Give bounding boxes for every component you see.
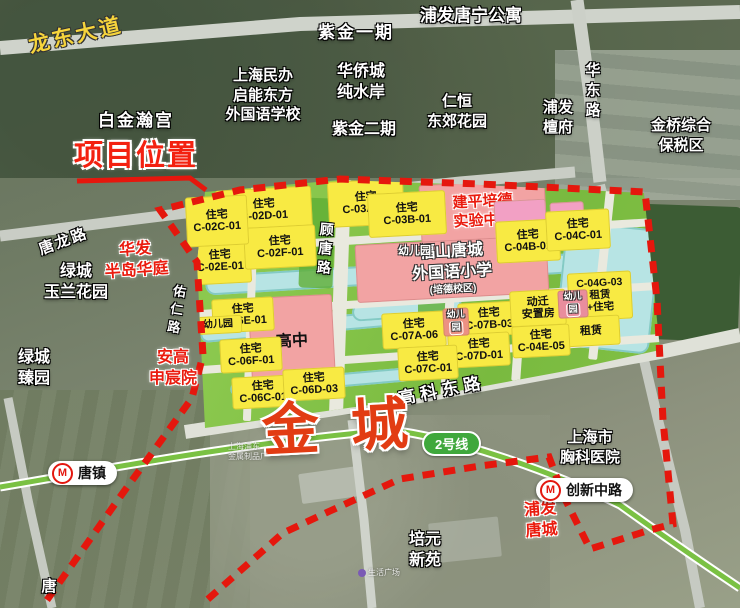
plot-relocation-l2: 安置房 bbox=[522, 307, 556, 321]
kinder-right-l1: 幼儿 bbox=[563, 291, 582, 304]
plot-c04g-rental-l2: +住宅 bbox=[587, 301, 615, 314]
plot-c06f-type: 住宅 bbox=[239, 342, 262, 355]
estate-peiyuan: 培元 新苑 bbox=[402, 530, 448, 572]
plot-c06c-type: 住宅 bbox=[251, 379, 274, 392]
estate-angao: 安高 申宸院 bbox=[140, 348, 206, 390]
plot-c04e5-code: C-04E-05 bbox=[517, 340, 565, 355]
plot-c04c-code: C-04C-01 bbox=[554, 229, 602, 244]
plot-c04e5-type: 住宅 bbox=[529, 328, 552, 341]
plot-c07d-type: 住宅 bbox=[467, 337, 490, 350]
tangcheng-l2: 唐城 bbox=[516, 519, 567, 543]
chuangxin-station-label: 创新中路 bbox=[566, 480, 622, 500]
satellite-planning-map: 建平培德 实验中学 福山唐城 外国语小学 (培德校区) 高中 住宅C-02D-0… bbox=[0, 0, 740, 608]
peiyuan-l1: 培元 bbox=[402, 530, 448, 551]
faint-plaza-label: 生活广场 bbox=[358, 568, 400, 578]
estate-huafa: 华发 半岛华庭 bbox=[95, 237, 178, 284]
qineng-l2: 启能东方 bbox=[215, 86, 311, 106]
xiongke-l2: 胸科医院 bbox=[550, 448, 630, 468]
huaqiaocheng-l1: 华侨城 bbox=[326, 62, 396, 83]
estate-qineng-school: 上海民办 启能东方 外国语学校 bbox=[215, 66, 311, 125]
plot-c06d-type: 住宅 bbox=[302, 371, 325, 384]
plot-c07a: 住宅C-07A-06 bbox=[381, 310, 447, 349]
huaqiaocheng-l2: 纯水岸 bbox=[326, 83, 396, 104]
fushan-school-label-l2: 外国语小学 bbox=[412, 260, 493, 285]
plot-c04c-type: 住宅 bbox=[566, 217, 589, 230]
zhen-l1: 绿城 bbox=[10, 348, 58, 369]
plot-c04c: 住宅C-04C-01 bbox=[545, 208, 611, 251]
metro-station-chuangxin: M 创新中路 bbox=[536, 478, 633, 502]
angao-l2: 申宸院 bbox=[140, 369, 206, 390]
tangzhen-station-label: 唐镇 bbox=[78, 463, 106, 483]
plot-c07b-code: C-07B-03 bbox=[465, 318, 513, 333]
faint-factory-label: 上海浦东 金属制品厂 bbox=[228, 442, 268, 463]
plot-rental-label: 租赁 bbox=[580, 324, 603, 337]
plot-kindergarten-mid: 幼儿 园 bbox=[442, 307, 469, 336]
estate-pufa-tangning: 浦发唐宁公寓 bbox=[420, 5, 522, 27]
qineng-l1: 上海民办 bbox=[215, 66, 311, 86]
plot-c07c-code: C-07C-01 bbox=[404, 362, 452, 377]
plot-c07d-code: C-07D-01 bbox=[455, 349, 503, 364]
plot-c04e5: 住宅C-04E-05 bbox=[511, 324, 571, 359]
estate-pufa-tanfu: 浦发 檀府 bbox=[528, 98, 588, 137]
xiongke-l1: 上海市 bbox=[550, 428, 630, 448]
plaza-label: 生活广场 bbox=[368, 568, 400, 577]
jinqiao-l1: 金桥综合 bbox=[642, 116, 720, 136]
tanfu-l2: 檀府 bbox=[528, 118, 588, 138]
angao-l1: 安高 bbox=[140, 348, 206, 369]
plot-c02c-type: 住宅 bbox=[205, 208, 228, 221]
plot-c06f-code: C-06F-01 bbox=[228, 354, 275, 369]
plot-c02e-type: 住宅 bbox=[208, 248, 231, 261]
estate-zijin2: 紫金二期 bbox=[332, 120, 396, 141]
plot-c07b-type: 住宅 bbox=[477, 306, 500, 319]
plot-c07c-type: 住宅 bbox=[416, 350, 439, 363]
zhen-l2: 臻园 bbox=[10, 369, 58, 390]
plot-c04b-type: 住宅 bbox=[516, 228, 539, 241]
plot-c07a-code: C-07A-06 bbox=[390, 329, 438, 344]
plot-c02c-code: C-02C-01 bbox=[193, 220, 241, 235]
kinder-left-label: 幼儿园 bbox=[203, 319, 234, 332]
plot-c07a-type: 住宅 bbox=[402, 317, 425, 330]
estate-lvcheng-zhen: 绿城 臻园 bbox=[10, 348, 58, 390]
kinder-mid-l1: 幼儿 bbox=[446, 309, 465, 322]
project-location-title: 项目位置 bbox=[74, 138, 198, 176]
plot-c02f-type: 住宅 bbox=[268, 234, 291, 247]
plot-c03b-type: 住宅 bbox=[395, 201, 418, 214]
plot-c03b-code: C-03B-01 bbox=[383, 213, 431, 228]
plot-c02c: 住宅C-02C-01 bbox=[185, 194, 250, 247]
area-name-jincheng: 金城 bbox=[260, 385, 442, 468]
plot-c02d-type: 住宅 bbox=[252, 197, 275, 210]
metro-line2-badge: 2号线 bbox=[422, 431, 481, 456]
plot-c02f: 住宅C-02F-01 bbox=[243, 224, 317, 270]
estate-huaqiaocheng: 华侨城 纯水岸 bbox=[326, 62, 396, 104]
renheng-l2: 东郊花园 bbox=[424, 112, 490, 132]
metro-logo-icon-2: M bbox=[540, 480, 561, 501]
fushan-school-label-l3: (培德校区) bbox=[429, 282, 476, 297]
yulan-l2: 玉兰花园 bbox=[36, 283, 116, 304]
plot-c06e-type: 住宅 bbox=[231, 302, 254, 315]
estate-renheng: 仁恒 东郊花园 bbox=[424, 92, 490, 131]
plot-c02e-code: C-02E-01 bbox=[196, 260, 244, 275]
plot-c06f: 住宅C-06F-01 bbox=[219, 336, 283, 373]
estate-baijinhangong: 白金瀚宫 bbox=[98, 110, 174, 132]
renheng-l1: 仁恒 bbox=[424, 92, 490, 112]
plot-relocation-l1: 动迁 bbox=[526, 295, 549, 308]
metro-station-tangzhen: M 唐镇 bbox=[48, 461, 117, 485]
plot-c02f-code: C-02F-01 bbox=[257, 246, 304, 261]
peiyuan-l2: 新苑 bbox=[402, 551, 448, 572]
estate-jinqiao: 金桥综合 保税区 bbox=[642, 116, 720, 155]
kindergarten-fushan-label: 幼儿园 bbox=[398, 244, 431, 258]
kinder-right-l2: 园 bbox=[566, 303, 580, 317]
metro-logo-icon: M bbox=[52, 463, 73, 484]
factory-l2: 金属制品厂 bbox=[228, 452, 268, 462]
plot-c04b-code: C-04B-01 bbox=[504, 240, 552, 255]
plot-kindergarten-right: 幼儿 园 bbox=[557, 289, 588, 319]
kinder-mid-l2: 园 bbox=[449, 321, 463, 335]
qineng-l3: 外国语学校 bbox=[215, 105, 311, 125]
plot-kindergarten-left: 幼儿园 bbox=[194, 315, 243, 335]
jinqiao-l2: 保税区 bbox=[642, 136, 720, 156]
plot-c07c: 住宅C-07C-01 bbox=[397, 344, 459, 381]
factory-l1: 上海浦东 bbox=[228, 442, 268, 452]
estate-zijin1: 紫金一期 bbox=[318, 22, 394, 44]
bottomleft-road bbox=[8, 398, 52, 608]
road-label-tang-partial: 唐 bbox=[38, 578, 58, 598]
plaza-poi-icon bbox=[358, 569, 366, 577]
plot-c03b: 住宅C-03B-01 bbox=[367, 190, 447, 238]
estate-pufa-tangcheng: 浦发 唐城 bbox=[515, 498, 568, 543]
estate-xiongke-hospital: 上海市 胸科医院 bbox=[550, 428, 630, 467]
tanfu-l1: 浦发 bbox=[528, 98, 588, 118]
